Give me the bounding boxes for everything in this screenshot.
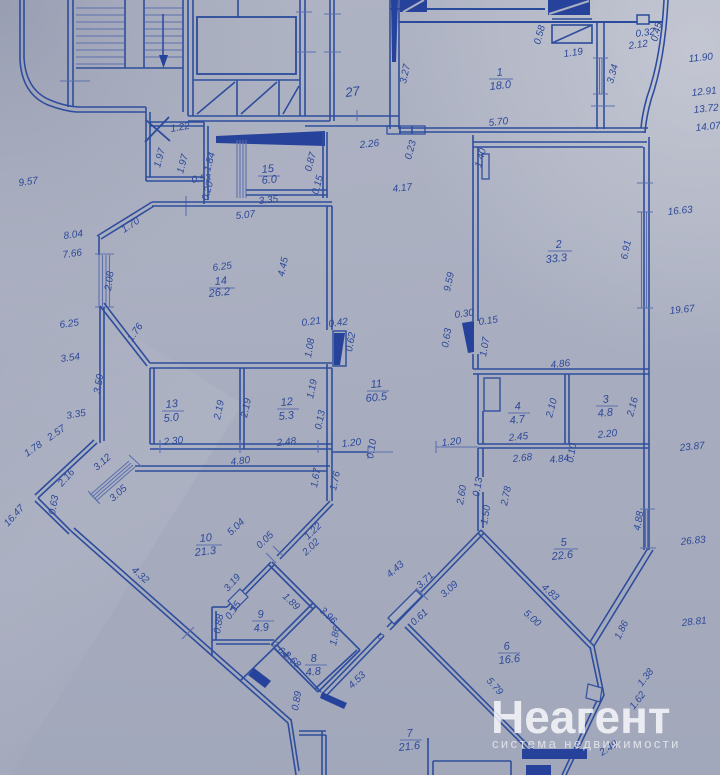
svg-text:4.8: 4.8 [305, 665, 322, 679]
svg-text:22.6: 22.6 [550, 549, 574, 563]
svg-text:21.6: 21.6 [397, 740, 421, 754]
svg-text:4.17: 4.17 [392, 182, 413, 195]
svg-text:21.3: 21.3 [193, 545, 217, 559]
svg-text:4.8: 4.8 [597, 406, 614, 420]
svg-text:1.20: 1.20 [341, 437, 362, 450]
svg-text:2: 2 [554, 238, 562, 251]
svg-text:4.86: 4.86 [550, 358, 571, 371]
svg-text:6.0: 6.0 [261, 173, 278, 187]
svg-text:5.3: 5.3 [278, 409, 295, 423]
svg-text:11: 11 [370, 378, 383, 391]
svg-text:27: 27 [343, 83, 361, 100]
svg-text:33.3: 33.3 [545, 252, 568, 266]
svg-text:1: 1 [496, 66, 503, 79]
svg-text:3.35: 3.35 [258, 194, 279, 207]
svg-text:12: 12 [280, 396, 293, 409]
svg-text:система недвижимости: система недвижимости [492, 736, 681, 751]
svg-text:10: 10 [199, 532, 213, 545]
svg-text:5.0: 5.0 [163, 411, 180, 425]
svg-text:9: 9 [257, 608, 264, 621]
svg-text:18.0: 18.0 [489, 79, 512, 93]
svg-text:2.68: 2.68 [511, 452, 533, 465]
svg-text:2.30: 2.30 [162, 435, 184, 448]
svg-text:2.26: 2.26 [358, 138, 380, 151]
svg-text:4.7: 4.7 [509, 413, 526, 427]
svg-text:4: 4 [514, 400, 521, 413]
svg-text:5.07: 5.07 [235, 209, 256, 222]
svg-text:2.45: 2.45 [507, 431, 529, 444]
svg-text:4.9: 4.9 [253, 621, 269, 635]
svg-text:26.2: 26.2 [207, 286, 231, 300]
svg-text:4.80: 4.80 [230, 455, 251, 468]
svg-text:1.20: 1.20 [441, 436, 462, 449]
svg-text:13: 13 [165, 398, 179, 411]
svg-text:2.20: 2.20 [596, 428, 618, 441]
svg-text:5.70: 5.70 [488, 116, 509, 129]
svg-text:60.5: 60.5 [365, 391, 388, 405]
svg-text:16.6: 16.6 [498, 653, 521, 667]
svg-text:2.48: 2.48 [275, 436, 297, 449]
